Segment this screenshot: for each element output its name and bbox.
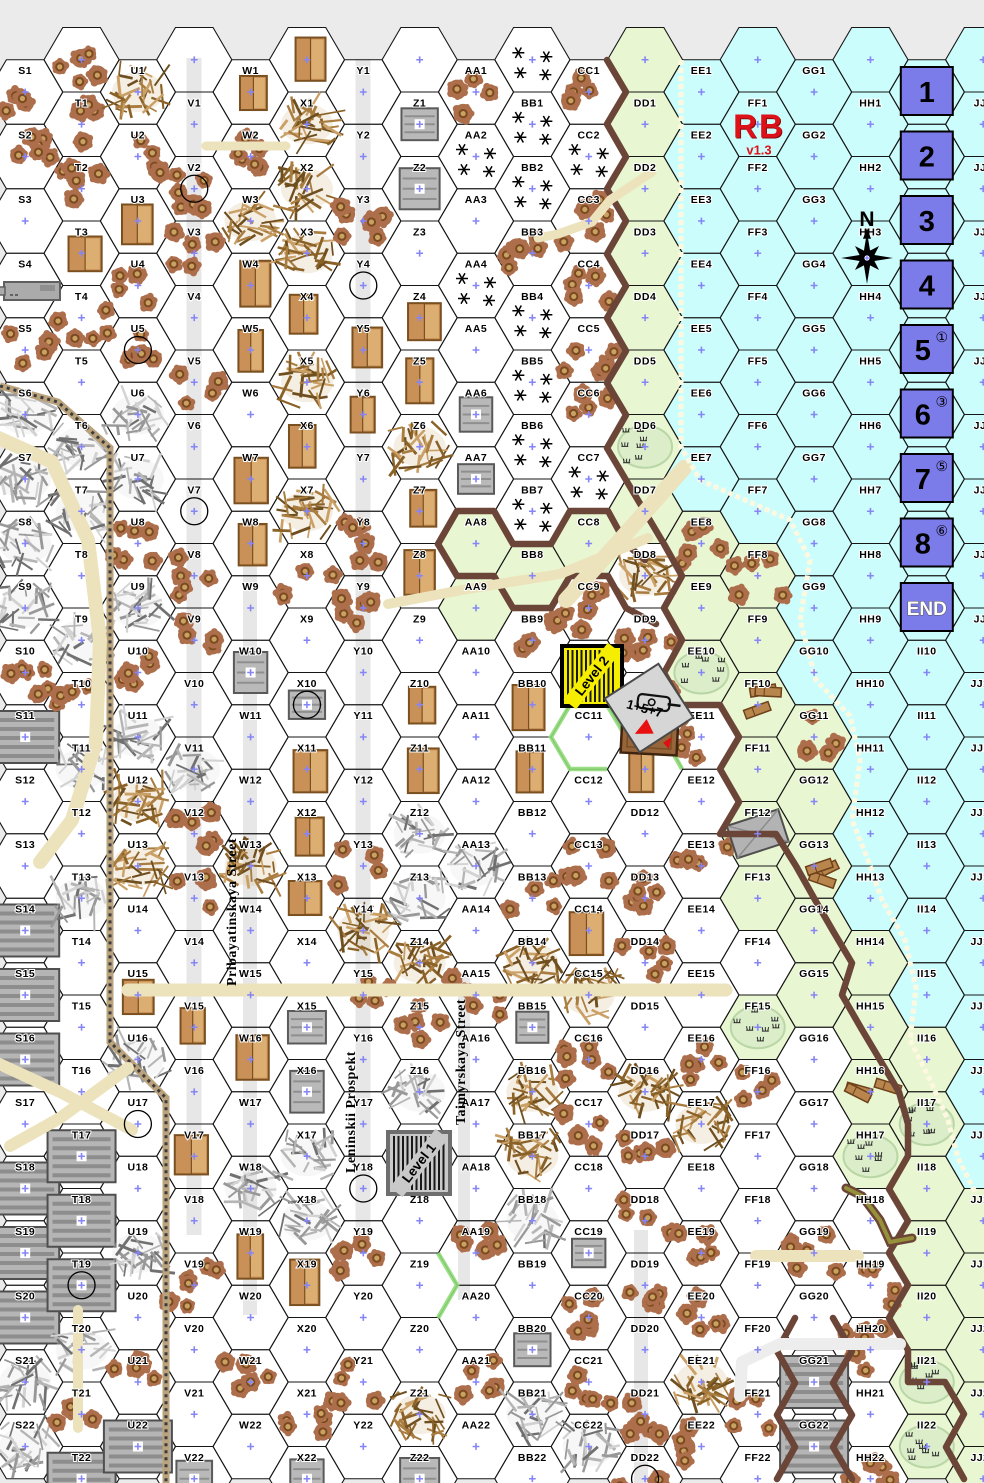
hex-label-V2: V2 bbox=[187, 162, 201, 174]
hex-label-DD20: DD20 bbox=[631, 1323, 660, 1335]
hex-label-X8: X8 bbox=[300, 549, 314, 561]
hex-label-Y4: Y4 bbox=[356, 259, 370, 271]
hex-label-Y12: Y12 bbox=[353, 775, 373, 787]
hex-label-V12: V12 bbox=[184, 807, 204, 819]
hex-label-S17: S17 bbox=[15, 1097, 35, 1109]
hex-label-II19: II19 bbox=[917, 1226, 937, 1238]
hex-label-Y2: Y2 bbox=[356, 130, 370, 142]
hex-label-FF15: FF15 bbox=[744, 1000, 771, 1012]
hex-label-EE3: EE3 bbox=[691, 194, 712, 206]
hex-label-DD6: DD6 bbox=[634, 420, 657, 432]
hex-label-HH22: HH22 bbox=[856, 1452, 885, 1464]
hex-label-JJ15: JJ15 bbox=[970, 1000, 984, 1012]
hex-label-Z20: Z20 bbox=[410, 1323, 430, 1335]
turn-track-box-6[interactable]: 6③ bbox=[901, 390, 953, 438]
hex-label-U14: U14 bbox=[128, 904, 149, 916]
hex-label-FF21: FF21 bbox=[744, 1387, 771, 1399]
hex-label-W12: W12 bbox=[239, 775, 262, 787]
hex-label-CC18: CC18 bbox=[574, 1162, 603, 1174]
hex-label-FF9: FF9 bbox=[748, 613, 768, 625]
hex-label-V20: V20 bbox=[184, 1323, 204, 1335]
hex-label-X5: X5 bbox=[300, 355, 314, 367]
hex-label-EE6: EE6 bbox=[691, 388, 712, 400]
hex-label-V9: V9 bbox=[187, 613, 201, 625]
turn-track-superscript: ⑥ bbox=[936, 524, 949, 540]
hex-label-FF7: FF7 bbox=[748, 484, 768, 496]
hex-label-JJ6: JJ6 bbox=[974, 420, 984, 432]
hex-label-V6: V6 bbox=[187, 420, 201, 432]
hex-label-HH4: HH4 bbox=[859, 291, 882, 303]
hex-label-V11: V11 bbox=[184, 742, 204, 754]
hex-label-T15: T15 bbox=[72, 1000, 92, 1012]
turn-track-box-8[interactable]: 8⑥ bbox=[901, 519, 953, 567]
hex-label-BB1: BB1 bbox=[521, 97, 544, 109]
turn-track-box-2[interactable]: 2 bbox=[901, 132, 953, 180]
hex-label-JJ20: JJ20 bbox=[970, 1323, 984, 1335]
hex-label-Y3: Y3 bbox=[356, 194, 370, 206]
map-board: S1S2S3S4S5S6S7S8S9S10S11S12S13S14S15S16S… bbox=[0, 0, 984, 1483]
hex-label-U16: U16 bbox=[128, 1033, 149, 1045]
hex-label-X10: X10 bbox=[297, 678, 317, 690]
hex-label-FF5: FF5 bbox=[748, 355, 768, 367]
hex-label-HH18: HH18 bbox=[856, 1194, 885, 1206]
hex-label-DD14: DD14 bbox=[631, 936, 660, 948]
hex-label-Z3: Z3 bbox=[413, 226, 426, 238]
hex-label-V7: V7 bbox=[187, 484, 201, 496]
hex-label-HH8: HH8 bbox=[859, 549, 882, 561]
hex-label-II14: II14 bbox=[917, 904, 937, 916]
hex-label-S18: S18 bbox=[15, 1162, 35, 1174]
hex-label-AA2: AA2 bbox=[465, 130, 488, 142]
hex-label-HH9: HH9 bbox=[859, 613, 882, 625]
hex-label-JJ2: JJ2 bbox=[974, 162, 984, 174]
hex-label-U21: U21 bbox=[128, 1355, 149, 1367]
hex-label-W10: W10 bbox=[239, 646, 262, 658]
hex-label-EE16: EE16 bbox=[688, 1033, 716, 1045]
hex-label-CC17: CC17 bbox=[574, 1097, 603, 1109]
hex-label-HH21: HH21 bbox=[856, 1387, 885, 1399]
hex-label-EE5: EE5 bbox=[691, 323, 712, 335]
turn-track-box-5[interactable]: 5① bbox=[901, 325, 953, 373]
hex-label-AA4: AA4 bbox=[465, 259, 488, 271]
hex-label-Y1: Y1 bbox=[356, 65, 370, 77]
hex-label-CC4: CC4 bbox=[577, 259, 600, 271]
hex-label-V8: V8 bbox=[187, 549, 201, 561]
hex-label-Z19: Z19 bbox=[410, 1258, 430, 1270]
hex-label-GG16: GG16 bbox=[799, 1033, 829, 1045]
hex-label-Y13: Y13 bbox=[353, 839, 373, 851]
hex-label-GG9: GG9 bbox=[802, 581, 826, 593]
hex-label-Y7: Y7 bbox=[356, 452, 370, 464]
hex-label-JJ4: JJ4 bbox=[974, 291, 984, 303]
hex-label-W22: W22 bbox=[239, 1420, 262, 1432]
hex-label-T13: T13 bbox=[72, 871, 92, 883]
hex-label-II10: II10 bbox=[917, 646, 937, 658]
hex-label-Y21: Y21 bbox=[353, 1355, 373, 1367]
hex-label-Z1: Z1 bbox=[413, 97, 426, 109]
hex-label-CC13: CC13 bbox=[574, 839, 603, 851]
hex-label-JJ1: JJ1 bbox=[974, 97, 984, 109]
hex-label-Y17: Y17 bbox=[353, 1097, 373, 1109]
hex-label-V13: V13 bbox=[184, 871, 204, 883]
hex-label-S6: S6 bbox=[18, 388, 32, 400]
hex-label-GG14: GG14 bbox=[799, 904, 829, 916]
hex-label-JJ17: JJ17 bbox=[970, 1129, 984, 1141]
hex-label-X9: X9 bbox=[300, 613, 314, 625]
hex-label-V22: V22 bbox=[184, 1452, 204, 1464]
hex-label-Z11: Z11 bbox=[410, 742, 429, 754]
hex-label-BB7: BB7 bbox=[521, 484, 544, 496]
hex-label-EE14: EE14 bbox=[688, 904, 716, 916]
hex-label-X12: X12 bbox=[297, 807, 317, 819]
hex-label-Y19: Y19 bbox=[353, 1226, 373, 1238]
hex-label-DD17: DD17 bbox=[631, 1129, 660, 1141]
hex-label-W9: W9 bbox=[242, 581, 259, 593]
hex-label-HH10: HH10 bbox=[856, 678, 885, 690]
hex-label-U2: U2 bbox=[131, 130, 145, 142]
hex-label-T7: T7 bbox=[75, 484, 88, 496]
hex-label-EE2: EE2 bbox=[691, 130, 712, 142]
hex-label-EE8: EE8 bbox=[691, 517, 712, 529]
hex-label-AA12: AA12 bbox=[462, 775, 491, 787]
hex-label-FF11: FF11 bbox=[745, 742, 771, 754]
hex-label-FF17: FF17 bbox=[744, 1129, 771, 1141]
hex-label-HH5: HH5 bbox=[859, 355, 882, 367]
hex-label-S2: S2 bbox=[18, 130, 32, 142]
hex-label-CC16: CC16 bbox=[574, 1033, 603, 1045]
hex-label-T5: T5 bbox=[75, 355, 88, 367]
hex-label-T8: T8 bbox=[75, 549, 88, 561]
hex-label-U5: U5 bbox=[131, 323, 145, 335]
hex-label-EE7: EE7 bbox=[691, 452, 712, 464]
hex-label-W13: W13 bbox=[239, 839, 262, 851]
hex-label-V17: V17 bbox=[184, 1129, 204, 1141]
hex-label-GG6: GG6 bbox=[802, 388, 826, 400]
hex-label-W3: W3 bbox=[242, 194, 259, 206]
turn-track-box-END[interactable]: END bbox=[901, 583, 953, 631]
hex-label-GG22: GG22 bbox=[799, 1420, 829, 1432]
hex-label-CC15: CC15 bbox=[574, 968, 603, 980]
hex-label-V1: V1 bbox=[187, 97, 201, 109]
hex-label-AA13: AA13 bbox=[462, 839, 491, 851]
hex-label-DD3: DD3 bbox=[634, 226, 657, 238]
hex-label-BB11: BB11 bbox=[518, 742, 546, 754]
compass-north-label: N bbox=[859, 208, 874, 231]
hex-label-DD21: DD21 bbox=[631, 1387, 660, 1399]
hex-label-S12: S12 bbox=[15, 775, 35, 787]
hex-label-S22: S22 bbox=[15, 1420, 35, 1432]
hex-label-EE12: EE12 bbox=[688, 775, 716, 787]
hex-label-JJ19: JJ19 bbox=[970, 1258, 984, 1270]
hex-label-CC21: CC21 bbox=[574, 1355, 603, 1367]
hex-label-W5: W5 bbox=[242, 323, 259, 335]
hex-label-BB15: BB15 bbox=[518, 1000, 547, 1012]
hex-label-Z12: Z12 bbox=[410, 807, 430, 819]
hex-label-V18: V18 bbox=[184, 1194, 204, 1206]
hex-label-V10: V10 bbox=[184, 678, 204, 690]
hex-label-X19: X19 bbox=[297, 1258, 317, 1270]
hex-label-AA6: AA6 bbox=[465, 388, 488, 400]
hex-label-T2: T2 bbox=[75, 162, 88, 174]
hex-label-HH14: HH14 bbox=[856, 936, 885, 948]
hex-label-EE10: EE10 bbox=[688, 646, 716, 658]
hex-label-HH2: HH2 bbox=[859, 162, 882, 174]
hex-label-U6: U6 bbox=[131, 388, 145, 400]
hex-label-EE19: EE19 bbox=[688, 1226, 716, 1238]
hex-label-U19: U19 bbox=[128, 1226, 149, 1238]
hex-label-U8: U8 bbox=[131, 517, 145, 529]
hex-label-BB5: BB5 bbox=[521, 355, 544, 367]
hex-label-AA3: AA3 bbox=[465, 194, 488, 206]
hex-label-Y8: Y8 bbox=[356, 517, 370, 529]
hex-label-BB12: BB12 bbox=[518, 807, 547, 819]
hex-label-DD8: DD8 bbox=[634, 549, 657, 561]
hex-label-JJ11: JJ11 bbox=[971, 742, 984, 754]
hex-label-W15: W15 bbox=[239, 968, 262, 980]
hex-label-X7: X7 bbox=[300, 484, 314, 496]
hex-label-U15: U15 bbox=[128, 968, 149, 980]
gun-counter-west[interactable] bbox=[0, 282, 60, 300]
hex-label-V21: V21 bbox=[184, 1387, 204, 1399]
hex-label-W2: W2 bbox=[242, 130, 259, 142]
level1-counter[interactable]: Level 1 bbox=[388, 1129, 450, 1197]
hex-label-JJ13: JJ13 bbox=[970, 871, 984, 883]
hex-label-V3: V3 bbox=[187, 226, 201, 238]
hex-label-Z5: Z5 bbox=[413, 355, 426, 367]
hex-label-GG1: GG1 bbox=[802, 65, 826, 77]
hex-label-X11: X11 bbox=[297, 742, 317, 754]
hex-label-DD15: DD15 bbox=[631, 1000, 660, 1012]
hex-label-T18: T18 bbox=[72, 1194, 92, 1206]
hex-label-DD1: DD1 bbox=[634, 97, 657, 109]
turn-track-box-3[interactable]: 3 bbox=[901, 196, 953, 244]
hex-label-AA1: AA1 bbox=[465, 65, 488, 77]
hex-label-FF14: FF14 bbox=[744, 936, 771, 948]
hex-label-FF18: FF18 bbox=[744, 1194, 771, 1206]
hex-label-JJ14: JJ14 bbox=[970, 936, 984, 948]
hex-label-W17: W17 bbox=[239, 1097, 262, 1109]
hex-label-T17: T17 bbox=[72, 1129, 92, 1141]
turn-track-box-7[interactable]: 7⑤ bbox=[901, 454, 953, 502]
hex-label-FF1: FF1 bbox=[748, 97, 768, 109]
hex-label-X13: X13 bbox=[297, 871, 317, 883]
hex-label-GG17: GG17 bbox=[799, 1097, 829, 1109]
hex-label-X1: X1 bbox=[300, 97, 314, 109]
hex-label-JJ22: JJ22 bbox=[970, 1452, 984, 1464]
hex-label-GG7: GG7 bbox=[802, 452, 826, 464]
hex-label-X21: X21 bbox=[297, 1387, 317, 1399]
hex-label-GG20: GG20 bbox=[799, 1291, 829, 1303]
hex-label-CC1: CC1 bbox=[577, 65, 600, 77]
hex-label-X14: X14 bbox=[297, 936, 317, 948]
hex-label-FF16: FF16 bbox=[744, 1065, 771, 1077]
hex-label-V14: V14 bbox=[184, 936, 204, 948]
hex-label-JJ18: JJ18 bbox=[970, 1194, 984, 1206]
hex-label-X16: X16 bbox=[297, 1065, 317, 1077]
hex-label-W16: W16 bbox=[239, 1033, 262, 1045]
hex-label-HH19: HH19 bbox=[856, 1258, 885, 1270]
hex-label-HH13: HH13 bbox=[856, 871, 885, 883]
hex-label-II20: II20 bbox=[917, 1291, 937, 1303]
hex-label-BB19: BB19 bbox=[518, 1258, 547, 1270]
hex-label-X20: X20 bbox=[297, 1323, 317, 1335]
hex-label-DD5: DD5 bbox=[634, 355, 657, 367]
hex-label-FF6: FF6 bbox=[748, 420, 768, 432]
hex-label-S7: S7 bbox=[18, 452, 32, 464]
hex-label-T21: T21 bbox=[72, 1387, 92, 1399]
hex-label-AA9: AA9 bbox=[465, 581, 488, 593]
hex-label-JJ8: JJ8 bbox=[974, 549, 984, 561]
hex-label-BB9: BB9 bbox=[521, 613, 544, 625]
hex-label-AA7: AA7 bbox=[465, 452, 488, 464]
hex-label-DD7: DD7 bbox=[634, 484, 657, 496]
hex-label-DD13: DD13 bbox=[631, 871, 660, 883]
hex-label-S10: S10 bbox=[15, 646, 35, 658]
hex-label-FF19: FF19 bbox=[744, 1258, 771, 1270]
hex-label-V15: V15 bbox=[184, 1000, 204, 1012]
hex-label-GG3: GG3 bbox=[802, 194, 826, 206]
hex-label-II15: II15 bbox=[917, 968, 937, 980]
hex-label-T22: T22 bbox=[72, 1452, 92, 1464]
hex-label-DD12: DD12 bbox=[631, 807, 660, 819]
hex-label-EE18: EE18 bbox=[688, 1162, 716, 1174]
hex-label-HH7: HH7 bbox=[859, 484, 882, 496]
hex-label-S11: S11 bbox=[15, 710, 35, 722]
hex-label-T6: T6 bbox=[75, 420, 88, 432]
hex-label-S9: S9 bbox=[18, 581, 32, 593]
hex-label-DD16: DD16 bbox=[631, 1065, 660, 1077]
hex-label-U7: U7 bbox=[131, 452, 145, 464]
hex-label-AA22: AA22 bbox=[462, 1420, 491, 1432]
hex-label-DD4: DD4 bbox=[634, 291, 657, 303]
hex-label-U17: U17 bbox=[128, 1097, 149, 1109]
hex-label-W14: W14 bbox=[239, 904, 262, 916]
hex-label-Y16: Y16 bbox=[353, 1033, 373, 1045]
hex-label-AA5: AA5 bbox=[465, 323, 488, 335]
hex-label-Z8: Z8 bbox=[413, 549, 426, 561]
hex-label-II11: II11 bbox=[917, 710, 936, 722]
hex-label-GG19: GG19 bbox=[799, 1226, 829, 1238]
hex-label-S16: S16 bbox=[15, 1033, 35, 1045]
hex-label-HH11: HH11 bbox=[856, 742, 884, 754]
hex-label-AA11: AA11 bbox=[462, 710, 490, 722]
hex-label-AA8: AA8 bbox=[465, 517, 488, 529]
hex-label-CC11: CC11 bbox=[575, 710, 603, 722]
hex-label-EE1: EE1 bbox=[691, 65, 712, 77]
hex-label-V19: V19 bbox=[184, 1258, 204, 1270]
hex-label-Z6: Z6 bbox=[413, 420, 426, 432]
hex-label-II17: II17 bbox=[917, 1097, 937, 1109]
hex-label-CC3: CC3 bbox=[577, 194, 600, 206]
hex-label-EE20: EE20 bbox=[688, 1291, 716, 1303]
hex-label-Y18: Y18 bbox=[353, 1162, 373, 1174]
hex-label-EE15: EE15 bbox=[688, 968, 716, 980]
hex-label-BB4: BB4 bbox=[521, 291, 544, 303]
hex-label-JJ7: JJ7 bbox=[974, 484, 984, 496]
hex-label-FF13: FF13 bbox=[744, 871, 771, 883]
hex-label-W4: W4 bbox=[242, 259, 259, 271]
hex-label-CC6: CC6 bbox=[577, 388, 600, 400]
hex-label-GG2: GG2 bbox=[802, 130, 826, 142]
hex-label-U20: U20 bbox=[128, 1291, 149, 1303]
hex-label-GG21: GG21 bbox=[799, 1355, 829, 1367]
hex-label-CC14: CC14 bbox=[574, 904, 603, 916]
hex-label-DD18: DD18 bbox=[631, 1194, 660, 1206]
hex-label-AA21: AA21 bbox=[462, 1355, 491, 1367]
hex-label-W21: W21 bbox=[239, 1355, 262, 1367]
hex-label-JJ5: JJ5 bbox=[974, 355, 984, 367]
hex-label-U13: U13 bbox=[128, 839, 149, 851]
hex-label-AA15: AA15 bbox=[462, 968, 491, 980]
hex-label-W6: W6 bbox=[242, 388, 259, 400]
hex-label-GG4: GG4 bbox=[802, 259, 826, 271]
hex-label-CC9: CC9 bbox=[577, 581, 600, 593]
hex-label-Y9: Y9 bbox=[356, 581, 370, 593]
hex-label-Z10: Z10 bbox=[410, 678, 430, 690]
hex-label-Z15: Z15 bbox=[410, 1000, 430, 1012]
hex-label-DD9: DD9 bbox=[634, 613, 657, 625]
hex-label-BB18: BB18 bbox=[518, 1194, 547, 1206]
hex-label-EE22: EE22 bbox=[688, 1420, 716, 1432]
hex-label-W1: W1 bbox=[242, 65, 259, 77]
hex-label-CC19: CC19 bbox=[574, 1226, 603, 1238]
hex-label-BB3: BB3 bbox=[521, 226, 544, 238]
hex-label-AA17: AA17 bbox=[462, 1097, 491, 1109]
hex-label-BB17: BB17 bbox=[518, 1129, 547, 1141]
hex-label-JJ16: JJ16 bbox=[970, 1065, 984, 1077]
hex-label-X18: X18 bbox=[297, 1194, 317, 1206]
turn-track-superscript: ① bbox=[936, 330, 949, 346]
hex-label-U4: U4 bbox=[131, 259, 145, 271]
hex-label-CC8: CC8 bbox=[577, 517, 600, 529]
turn-track: 12345①6③7⑤8⑥END bbox=[901, 67, 953, 631]
hex-label-JJ3: JJ3 bbox=[974, 226, 984, 238]
hex-label-S20: S20 bbox=[15, 1291, 35, 1303]
hex-label-BB21: BB21 bbox=[518, 1387, 547, 1399]
hex-label-II22: II22 bbox=[917, 1420, 937, 1432]
hex-label-X15: X15 bbox=[297, 1000, 317, 1012]
hex-label-BB13: BB13 bbox=[518, 871, 547, 883]
hex-label-GG5: GG5 bbox=[802, 323, 826, 335]
hex-label-X4: X4 bbox=[300, 291, 314, 303]
hex-label-T4: T4 bbox=[75, 291, 88, 303]
hex-label-X22: X22 bbox=[297, 1452, 317, 1464]
hex-label-DD2: DD2 bbox=[634, 162, 657, 174]
hex-label-Z9: Z9 bbox=[413, 613, 426, 625]
hex-label-JJ9: JJ9 bbox=[974, 613, 984, 625]
hex-label-BB10: BB10 bbox=[518, 678, 547, 690]
hex-label-GG8: GG8 bbox=[802, 517, 826, 529]
hex-label-AA18: AA18 bbox=[462, 1162, 491, 1174]
hex-label-U22: U22 bbox=[128, 1420, 149, 1432]
hex-label-S5: S5 bbox=[18, 323, 32, 335]
hex-label-AA20: AA20 bbox=[462, 1291, 491, 1303]
hex-label-EE4: EE4 bbox=[691, 259, 712, 271]
hex-label-II13: II13 bbox=[917, 839, 937, 851]
hex-label-EE17: EE17 bbox=[688, 1097, 716, 1109]
hex-label-Z14: Z14 bbox=[410, 936, 430, 948]
hex-label-V5: V5 bbox=[187, 355, 201, 367]
hex-label-CC5: CC5 bbox=[577, 323, 600, 335]
turn-track-box-4[interactable]: 4 bbox=[901, 261, 953, 309]
hex-label-Y10: Y10 bbox=[353, 646, 373, 658]
hex-label-S14: S14 bbox=[15, 904, 35, 916]
hex-label-S4: S4 bbox=[18, 259, 32, 271]
hex-label-S21: S21 bbox=[15, 1355, 35, 1367]
turn-track-box-1[interactable]: 1 bbox=[901, 67, 953, 115]
hex-label-S8: S8 bbox=[18, 517, 32, 529]
hex-label-FF8: FF8 bbox=[748, 549, 768, 561]
